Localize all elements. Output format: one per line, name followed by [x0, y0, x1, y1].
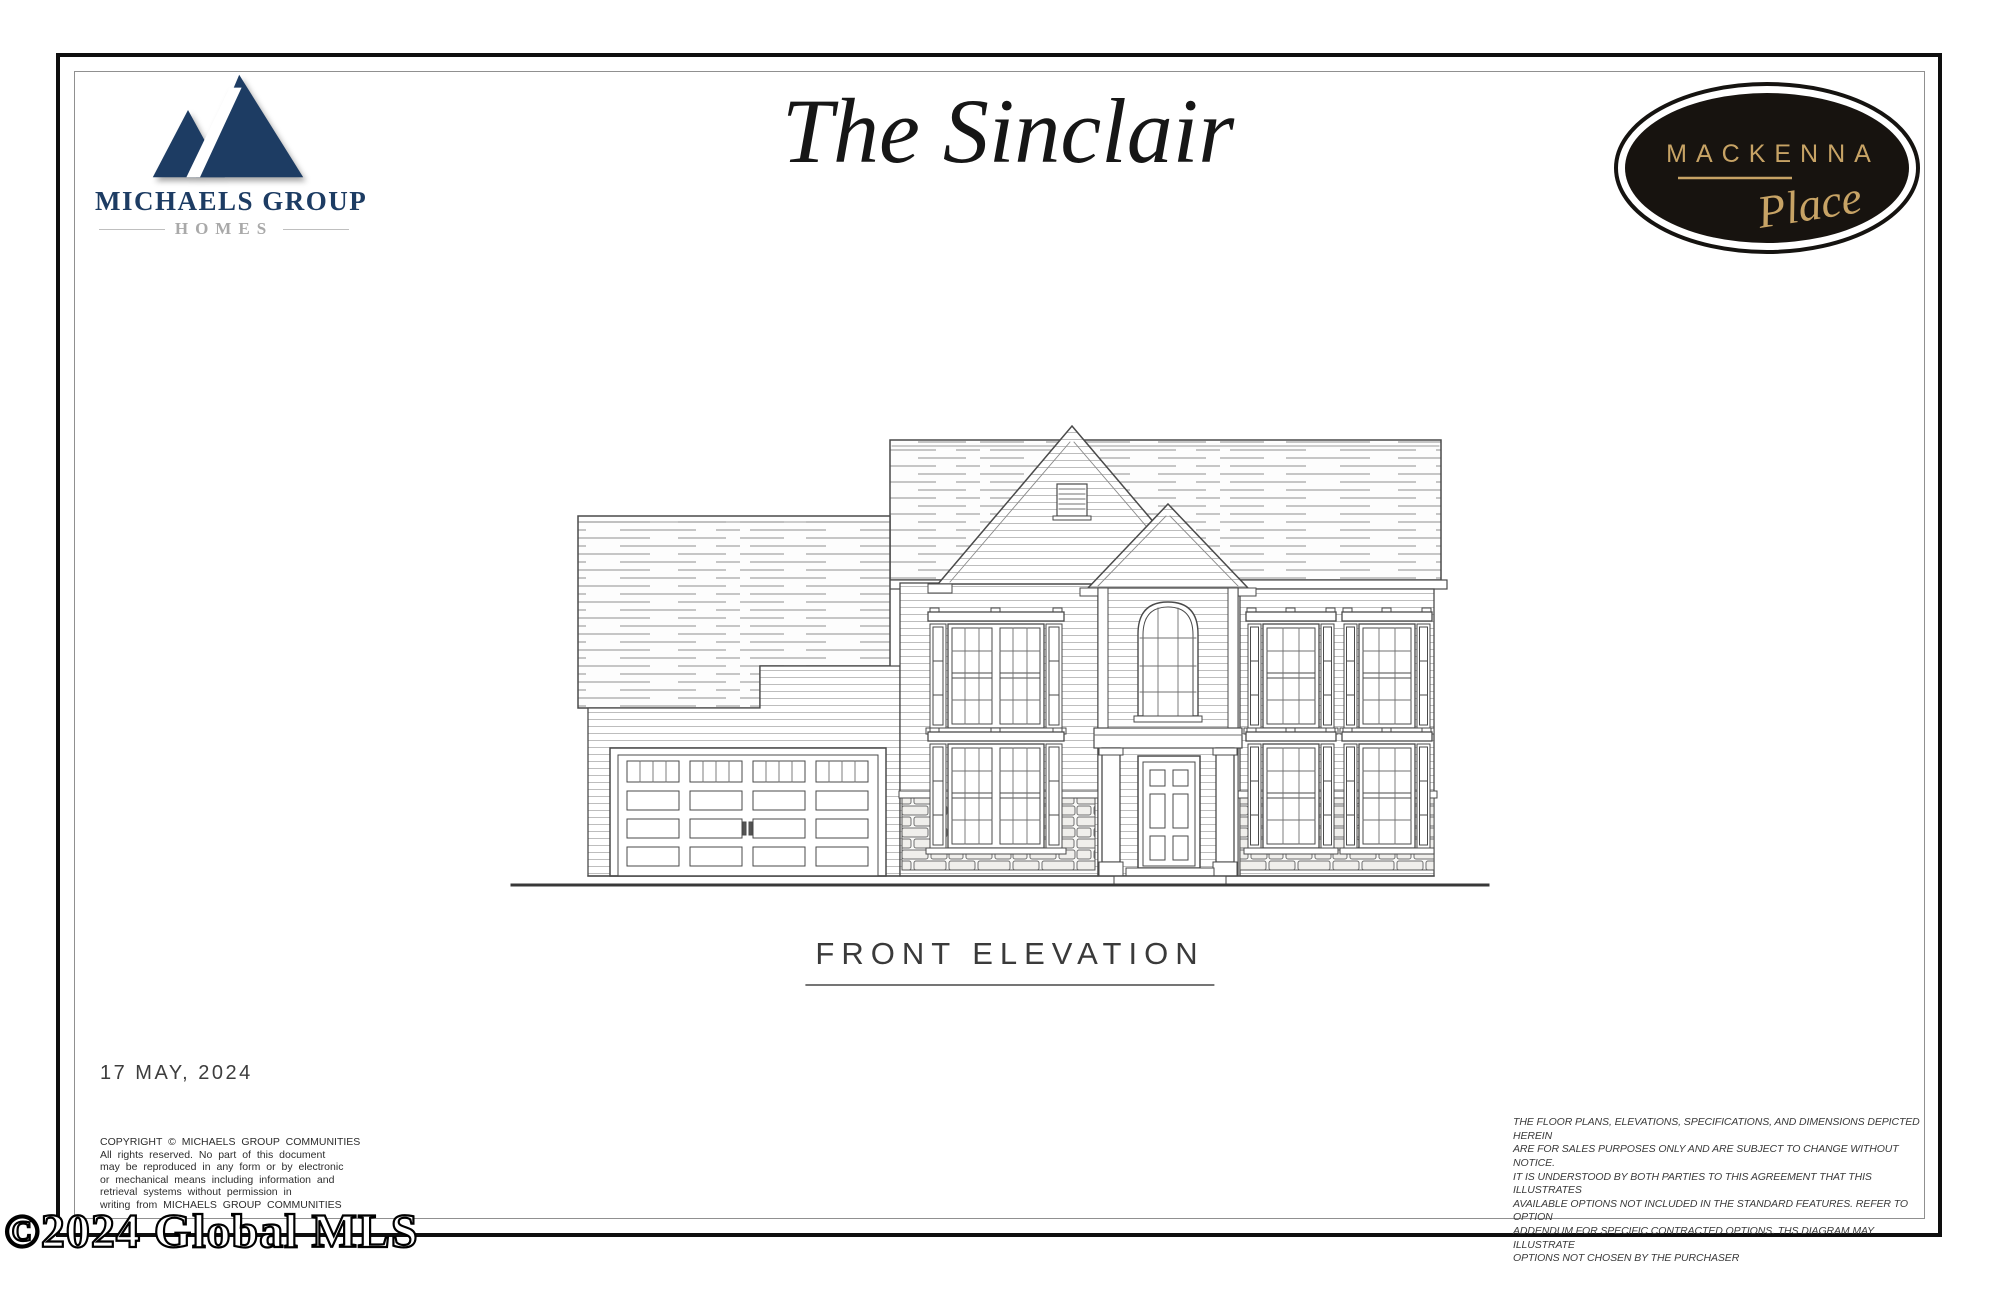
logo-division-row: HOMES: [95, 219, 353, 239]
window-2f-right-b: [1340, 608, 1434, 734]
michaels-group-logo: MICHAELS GROUP HOMES: [95, 70, 353, 239]
garage-door: [610, 748, 886, 876]
badge-community-name: MACKENNA: [1666, 140, 1880, 168]
logo-name: MICHAELS GROUP: [95, 186, 353, 217]
window-1f-right-b: [1340, 728, 1434, 854]
house-elevation-drawing: [500, 398, 1500, 898]
window-2f-right-a: [1244, 608, 1338, 734]
logo-mountains-icon: [140, 70, 308, 182]
logo-rule-left: [99, 229, 165, 230]
drawing-date: 17 MAY, 2024: [100, 1062, 253, 1085]
plan-title: The Sinclair: [782, 78, 1234, 184]
mls-watermark: ©2024 Global MLS: [4, 1204, 419, 1259]
logo-division: HOMES: [175, 219, 273, 239]
logo-rule-right: [283, 229, 349, 230]
front-door: [1138, 756, 1200, 868]
window-1f-right-a: [1244, 728, 1338, 854]
drawing-label: FRONT ELEVATION: [805, 936, 1214, 986]
copyright-notice: COPYRIGHT © MICHAELS GROUP COMMUNITIES A…: [100, 1136, 360, 1212]
community-badge: MACKENNA Place: [1610, 78, 1924, 263]
arched-window: [1134, 602, 1202, 722]
sales-disclaimer: THE FLOOR PLANS, ELEVATIONS, SPECIFICATI…: [1513, 1116, 1923, 1266]
attic-vent-icon: [1053, 484, 1091, 520]
elevation-sheet: MICHAELS GROUP HOMES The Sinclair MACKEN…: [0, 0, 2000, 1294]
